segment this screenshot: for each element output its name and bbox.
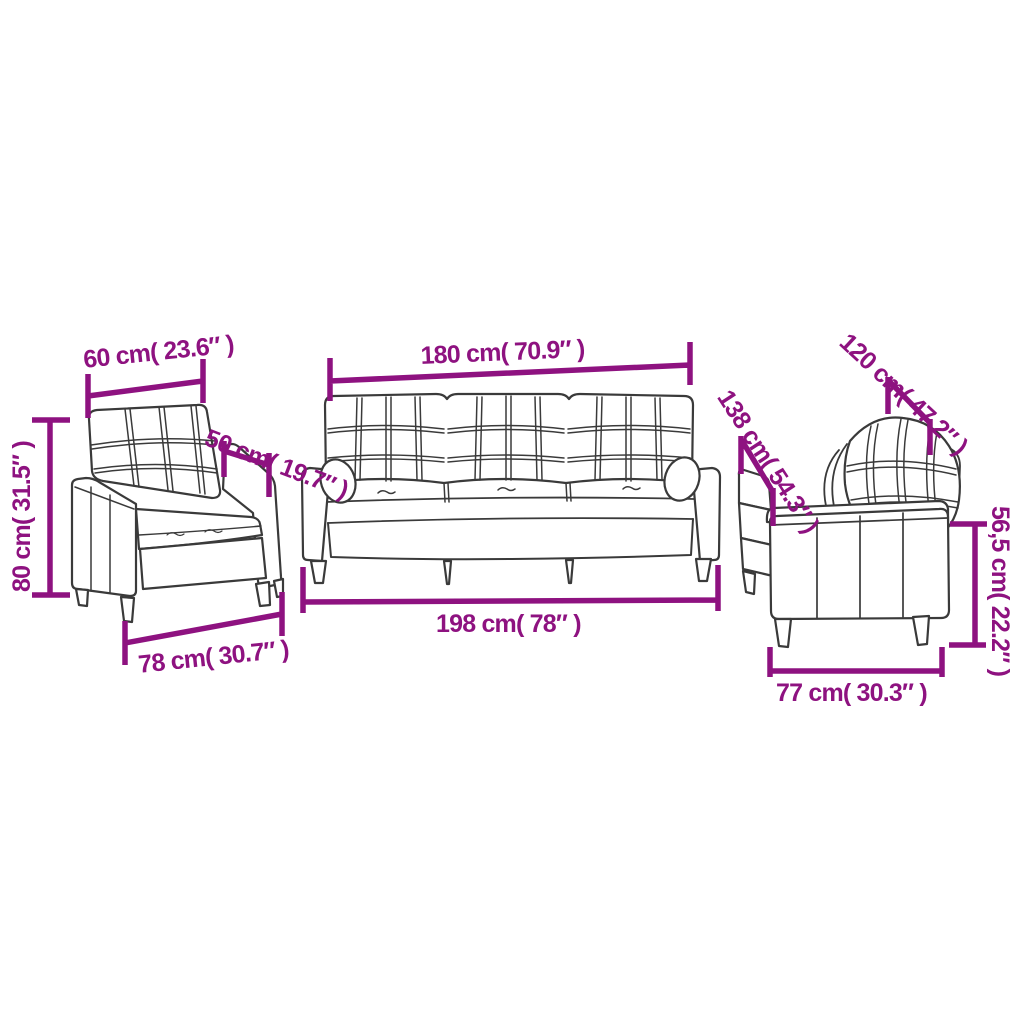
dim-line-sofa-total-width: [303, 565, 718, 613]
dim-label-sofa-total-width: 198 cm( 78″ ): [436, 610, 581, 639]
dim-line-loveseat-arm-height: [949, 524, 987, 645]
dim-label-armchair-height: 80 cm( 31.5″ ): [8, 441, 37, 592]
dim-label-loveseat-depth: 77 cm( 30.3″ ): [776, 679, 927, 708]
dim-line-armchair-height: [32, 420, 70, 595]
dimension-diagram: 60 cm( 23.6″ ) 80 cm( 31.5″ ) 50 cm( 19.…: [0, 0, 1024, 1024]
dim-label-loveseat-arm-height: 56,5 cm( 22.2″ ): [985, 506, 1014, 676]
dim-line-loveseat-depth: [770, 647, 942, 677]
dimension-lines: [0, 0, 1024, 1024]
